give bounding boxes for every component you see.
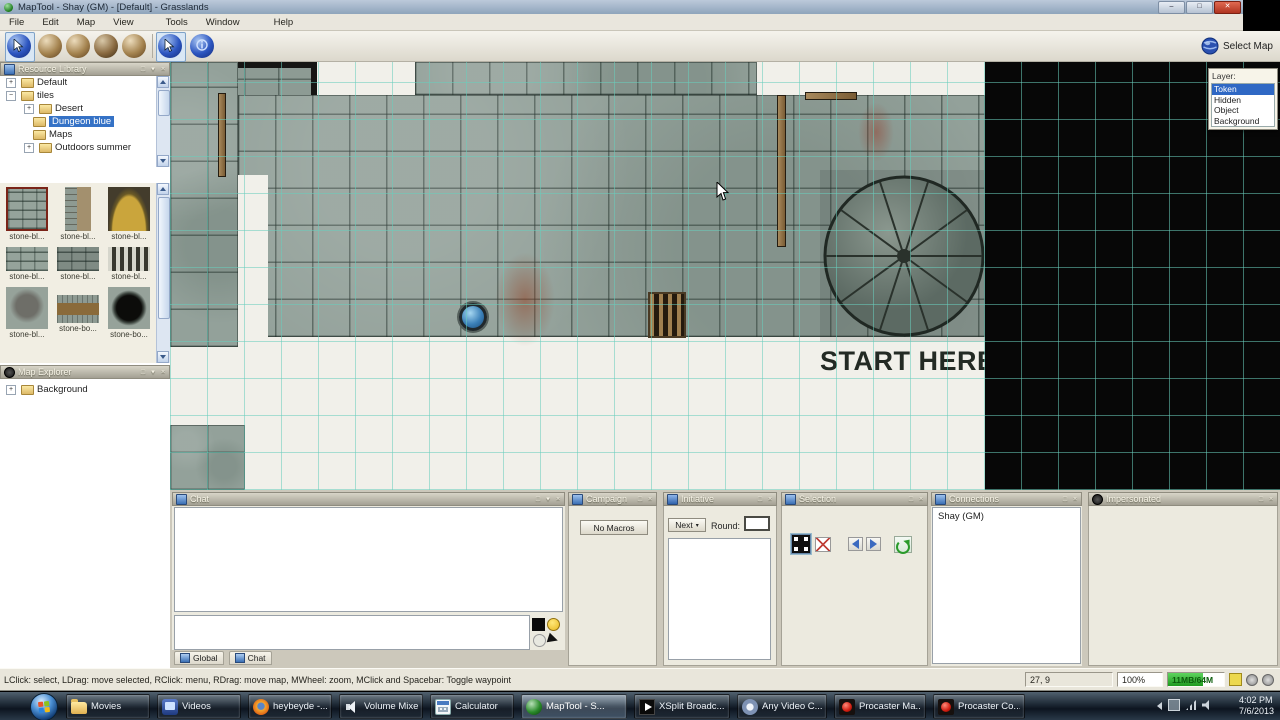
collapse-icon[interactable]: ▾	[149, 368, 157, 377]
resource-library-header[interactable]: Resource Library □▾×	[0, 62, 170, 76]
show-hidden-icons-icon[interactable]	[1157, 702, 1162, 710]
thumbnail-image-selected[interactable]	[6, 187, 48, 231]
grid-toggle-button[interactable]	[791, 534, 811, 554]
layer-panel: Layer: Token Hidden Object Background	[1208, 68, 1278, 130]
thumbnail-label: stone-bl...	[9, 330, 44, 339]
transfer-indicator-icon	[1246, 674, 1258, 686]
tab-icon	[180, 653, 190, 663]
refresh-icon	[896, 540, 910, 554]
chat-input[interactable]	[174, 615, 530, 650]
impersonated-body	[1088, 506, 1278, 666]
menu-window[interactable]: Window	[197, 15, 249, 30]
thumbnail-item[interactable]: stone-bl...	[105, 247, 153, 281]
thumbnail-item[interactable]: stone-bl...	[3, 187, 51, 241]
scroll-down-button[interactable]	[157, 351, 169, 363]
tree-label: Maps	[49, 129, 72, 140]
tree-label: Default	[37, 77, 67, 88]
menu-bar: File Edit Map View Tools Window Help	[0, 14, 1243, 31]
emoji-icon[interactable]	[547, 618, 560, 631]
tab-global[interactable]: Global	[174, 651, 224, 665]
arrow-right-icon	[870, 539, 877, 549]
float-icon[interactable]: □	[139, 65, 147, 74]
next-label: Next	[675, 520, 692, 530]
initiative-title: Initiative	[681, 494, 714, 504]
desktop-screen: MapTool - Shay (GM) - [Default] - Grassl…	[0, 0, 1280, 720]
campaign-panel: Campaign □× No Macros	[568, 492, 657, 666]
taskbar-item-firefox[interactable]: heybeyde -...	[248, 694, 332, 719]
panel-controls: □▾×	[139, 368, 167, 377]
chat-icon	[176, 494, 187, 505]
layer-option-object[interactable]: Object	[1212, 105, 1274, 116]
close-icon[interactable]: ×	[159, 65, 167, 74]
toolbar-separator	[152, 34, 153, 58]
thumbnail-label: stone-bl...	[60, 272, 95, 281]
initiative-icon	[667, 494, 678, 505]
door-marker	[218, 93, 226, 177]
close-icon[interactable]: ×	[766, 495, 774, 504]
close-icon[interactable]: ×	[917, 495, 925, 504]
thumbnail-label: stone-bo...	[110, 330, 148, 339]
folder-icon	[21, 385, 34, 395]
connection-item[interactable]: Shay (GM)	[933, 508, 1080, 525]
taskbar-item-xsplit[interactable]: XSplit Broadc...	[634, 694, 730, 719]
taskbar-item-movies[interactable]: Movies	[66, 694, 150, 719]
menu-file[interactable]: File	[0, 15, 33, 30]
taskbar-item-volume-mixer[interactable]: Volume Mixe...	[339, 694, 423, 719]
map-viewport[interactable]: START HERE Layer: Token Hidden Object Ba…	[170, 62, 1280, 490]
chat-panel: Chat □▾×	[172, 492, 565, 650]
thumbnail-image[interactable]	[6, 287, 48, 329]
initiative-panel: Initiative □× Next▾ Round:	[663, 492, 777, 666]
folder-icon	[33, 117, 46, 127]
thumbnail-image[interactable]	[57, 247, 99, 271]
close-icon[interactable]: ×	[1267, 495, 1275, 504]
zone-pointer-button[interactable]	[158, 34, 182, 58]
toolbar: Select Map	[0, 31, 1280, 62]
taskbar-clock[interactable]: 4:02 PM 7/6/2013	[1239, 695, 1274, 717]
template-tool-button[interactable]	[66, 34, 90, 58]
thumbnail-item[interactable]: stone-bo...	[105, 287, 153, 339]
speaker-icon	[344, 699, 360, 715]
display-tray-icon[interactable]	[1168, 699, 1180, 711]
connections-header[interactable]: Connections □×	[931, 492, 1082, 506]
maximize-button[interactable]: □	[1186, 1, 1213, 14]
selection-panel: Selection □×	[781, 492, 928, 666]
windows-logo-icon	[38, 701, 50, 713]
scroll-thumb[interactable]	[158, 90, 170, 116]
close-button[interactable]: ✕	[1214, 1, 1241, 14]
round-label: Round:	[711, 521, 740, 531]
arrow-left-icon	[852, 539, 859, 549]
selection-title: Selection	[799, 494, 836, 504]
media-player-icon	[162, 699, 178, 715]
tab-icon	[235, 653, 245, 663]
next-button[interactable]	[866, 537, 881, 551]
clock-date: 7/6/2013	[1239, 706, 1274, 717]
taskbar-label: Procaster Ma...	[859, 701, 921, 712]
refresh-button[interactable]	[894, 536, 912, 553]
send-icon[interactable]	[547, 633, 560, 646]
float-icon[interactable]: □	[1061, 495, 1069, 504]
thumbnail-image[interactable]	[65, 187, 91, 231]
chat-title: Chat	[190, 494, 209, 504]
calculator-icon	[435, 699, 451, 715]
tree-item-outdoors-summer[interactable]: + Outdoors summer	[0, 141, 170, 154]
scroll-up-button[interactable]	[157, 183, 169, 195]
impersonated-title: Impersonated	[1106, 494, 1161, 504]
firefox-icon	[253, 699, 269, 715]
thumbnail-item[interactable]: stone-bl...	[54, 187, 102, 241]
connections-list: Shay (GM)	[932, 507, 1081, 664]
close-icon[interactable]: ×	[646, 495, 654, 504]
folder-icon	[21, 91, 34, 101]
memory-indicator[interactable]: 11MB/64M	[1167, 672, 1225, 687]
thumbnail-image[interactable]	[6, 247, 48, 271]
thumbnail-image[interactable]	[108, 187, 150, 231]
menu-edit[interactable]: Edit	[33, 15, 67, 30]
layer-option-background[interactable]: Background	[1212, 116, 1274, 127]
tree-scrollbar[interactable]	[156, 76, 170, 167]
white-corridor-gap	[238, 175, 268, 337]
panel-controls: □▾×	[139, 65, 167, 74]
initiative-list[interactable]	[668, 538, 771, 660]
campaign-icon	[572, 494, 583, 505]
layer-option-token[interactable]: Token	[1212, 84, 1274, 95]
thumbnail-image[interactable]	[108, 287, 150, 329]
mouse-cursor-icon	[716, 182, 730, 202]
thumbnail-label: stone-bl...	[111, 232, 146, 241]
dungeon-tiles-top-row	[415, 62, 757, 95]
taskbar-item-maptool[interactable]: MapTool - S...	[521, 694, 627, 719]
rust-stain	[495, 252, 555, 347]
select-map-button[interactable]: Select Map	[1197, 33, 1277, 59]
thumbnail-image[interactable]	[108, 247, 150, 271]
resource-library-title: Resource Library	[18, 64, 87, 74]
selection-header[interactable]: Selection □×	[781, 492, 928, 506]
tree-item-dungeon-blue[interactable]: Dungeon blue	[0, 115, 170, 128]
thumbnail-image[interactable]	[57, 295, 99, 323]
folder-icon	[39, 143, 52, 153]
close-icon[interactable]: ×	[554, 495, 562, 504]
expander-icon[interactable]: +	[24, 143, 34, 153]
tree-item-maps[interactable]: Maps	[0, 128, 170, 141]
taskbar-item-calculator[interactable]: Calculator	[430, 694, 514, 719]
minimize-button[interactable]: –	[1158, 1, 1185, 14]
door-marker-tall	[777, 95, 786, 247]
close-icon[interactable]: ×	[1071, 495, 1079, 504]
snap-toggle-button[interactable]	[815, 537, 831, 552]
folder-icon	[71, 702, 87, 714]
window-titlebar: MapTool - Shay (GM) - [Default] - Grassl…	[0, 0, 1243, 14]
tree-item-desert[interactable]: + Desert	[0, 102, 170, 115]
video-converter-icon	[742, 699, 758, 715]
taskbar-label: Movies	[91, 701, 121, 712]
status-hint: LClick: select, LDrag: move selected, RC…	[0, 675, 511, 685]
chat-tab-bar: Global Chat	[174, 651, 272, 665]
thumbnail-label: stone-bo...	[59, 324, 97, 333]
thumbnail-label: stone-bl...	[9, 232, 44, 241]
layer-list: Token Hidden Object Background	[1211, 83, 1275, 127]
start-button[interactable]	[30, 693, 58, 720]
float-icon[interactable]: □	[636, 495, 644, 504]
resource-tree: + Default − tiles + Desert Dungeon blue …	[0, 76, 170, 167]
taskbar-label: Calculator	[455, 701, 498, 712]
connections-title: Connections	[949, 494, 999, 504]
grate-tile	[648, 292, 686, 338]
initiative-body: Next▾ Round:	[663, 506, 777, 666]
taskbar-label: Any Video C...	[762, 701, 822, 712]
zone-info-button[interactable]	[190, 34, 214, 58]
connections-icon	[935, 494, 946, 505]
door-marker-horizontal	[805, 92, 857, 100]
thumbnail-item[interactable]: stone-bl...	[3, 247, 51, 281]
taskbar: Movies Videos heybeyde -... Volume Mixe.…	[0, 691, 1280, 720]
taskbar-label: XSplit Broadc...	[659, 701, 724, 712]
pointer-tool-button[interactable]	[7, 34, 31, 58]
float-icon[interactable]: □	[907, 495, 915, 504]
campaign-body: No Macros	[568, 506, 657, 666]
chat-header[interactable]: Chat □▾×	[172, 492, 565, 506]
campaign-title: Campaign	[586, 494, 627, 504]
folder-icon	[39, 104, 52, 114]
collapse-icon[interactable]: ▾	[149, 65, 157, 74]
campaign-header[interactable]: Campaign □×	[568, 492, 657, 506]
scroll-up-button[interactable]	[157, 76, 169, 88]
chevron-down-icon: ▾	[696, 522, 699, 529]
folder-icon	[33, 130, 46, 140]
stamp-tool-button[interactable]	[122, 34, 146, 58]
window-title: MapTool - Shay (GM) - [Default] - Grassl…	[18, 2, 209, 13]
assets-indicator-icon	[1229, 673, 1242, 686]
play-icon	[639, 699, 655, 715]
dungeon-tiles-left-strip	[170, 62, 238, 347]
tree-item-background[interactable]: + Background	[0, 383, 170, 396]
status-bar: LClick: select, LDrag: move selected, RC…	[0, 668, 1280, 691]
memory-text: 11MB/64M	[1172, 675, 1213, 685]
scroll-down-button[interactable]	[157, 155, 169, 167]
procaster-icon	[839, 699, 855, 715]
token-tool-button[interactable]	[94, 34, 118, 58]
collapse-icon[interactable]: ▾	[544, 495, 552, 504]
globe-icon	[1201, 37, 1219, 55]
float-icon[interactable]: □	[756, 495, 764, 504]
bottom-dock: Chat □▾× Global Chat Campa	[170, 490, 1280, 668]
close-icon[interactable]: ×	[159, 368, 167, 377]
layer-option-hidden[interactable]: Hidden	[1212, 95, 1274, 106]
system-tray	[1157, 699, 1212, 711]
volume-tray-icon[interactable]	[1202, 700, 1212, 710]
folder-icon	[21, 78, 34, 88]
menu-view[interactable]: View	[104, 15, 142, 30]
next-button[interactable]: Next▾	[668, 518, 706, 532]
spiral-staircase	[820, 170, 988, 342]
impersonated-icon	[1092, 494, 1103, 505]
menu-map[interactable]: Map	[68, 15, 104, 30]
thumbnail-label: stone-bl...	[60, 232, 95, 241]
thumbnail-item[interactable]: stone-bl...	[105, 187, 153, 241]
no-macros-label: No Macros	[593, 523, 634, 533]
activity-indicator-icon	[1262, 674, 1274, 686]
taskbar-item-procaster-1[interactable]: Procaster Ma...	[834, 694, 926, 719]
selection-icon	[785, 494, 796, 505]
no-macros-button[interactable]: No Macros	[580, 520, 648, 535]
map-explorer-panel: Map Explorer □▾× + Background	[0, 365, 170, 668]
text-color-swatch[interactable]	[532, 618, 545, 631]
tab-chat[interactable]: Chat	[229, 651, 272, 665]
map-explorer-header[interactable]: Map Explorer □▾×	[0, 365, 170, 379]
tree-item-tiles[interactable]: − tiles	[0, 89, 170, 102]
float-icon[interactable]: □	[1257, 495, 1265, 504]
resource-library-panel: Resource Library □▾× + Default − tiles +…	[0, 62, 170, 365]
round-input[interactable]	[744, 516, 770, 531]
dungeon-tiles-bottom-left	[170, 425, 245, 490]
scroll-thumb[interactable]	[158, 197, 170, 319]
taskbar-label: heybeyde -...	[273, 701, 327, 712]
procaster-icon	[938, 699, 954, 715]
notify-icon[interactable]	[533, 634, 546, 647]
taskbar-item-any-video[interactable]: Any Video C...	[737, 694, 827, 719]
tree-label: Outdoors summer	[55, 142, 131, 153]
selection-body	[781, 506, 928, 666]
impersonated-header[interactable]: Impersonated □×	[1088, 492, 1278, 506]
float-icon[interactable]: □	[139, 368, 147, 377]
initiative-header[interactable]: Initiative □×	[663, 492, 777, 506]
tree-label-selected: Dungeon blue	[49, 116, 114, 127]
taskbar-label: MapTool - S...	[546, 701, 605, 712]
thumbnail-item[interactable]: stone-bl...	[3, 287, 51, 339]
menu-tools[interactable]: Tools	[157, 15, 197, 30]
expander-icon[interactable]: +	[6, 78, 16, 88]
thumbnail-item[interactable]: stone-bl...	[54, 247, 102, 281]
connections-panel: Connections □× Shay (GM)	[931, 492, 1082, 666]
taskbar-label: Volume Mixe...	[364, 701, 418, 712]
window-icon	[4, 367, 15, 378]
well-token[interactable]	[459, 303, 487, 331]
clock-time: 4:02 PM	[1239, 695, 1274, 706]
thumbnail-label: stone-bl...	[111, 272, 146, 281]
rust-stain	[858, 102, 894, 162]
cursor-icon	[13, 39, 24, 52]
select-map-label: Select Map	[1223, 41, 1273, 52]
layer-panel-label: Layer:	[1212, 71, 1275, 81]
info-icon	[196, 39, 208, 51]
expander-icon[interactable]: +	[6, 385, 16, 395]
coordinates-field: 27, 9	[1025, 672, 1113, 687]
map-explorer-title: Map Explorer	[18, 367, 72, 377]
maptool-globe-icon	[526, 699, 542, 715]
measure-tool-button[interactable]	[38, 34, 62, 58]
thumbnail-item[interactable]: stone-bo...	[54, 287, 102, 339]
float-icon[interactable]: □	[534, 495, 542, 504]
expander-icon[interactable]: −	[6, 91, 16, 101]
taskbar-item-videos[interactable]: Videos	[157, 694, 241, 719]
chat-message-area[interactable]	[174, 507, 563, 612]
zoom-field: 100%	[1117, 672, 1163, 687]
taskbar-buttons: Movies Videos heybeyde -... Volume Mixe.…	[66, 694, 1025, 719]
taskbar-item-procaster-2[interactable]: Procaster Co...	[933, 694, 1025, 719]
taskbar-label: Videos	[182, 701, 211, 712]
prev-button[interactable]	[848, 537, 863, 551]
tree-label: tiles	[37, 90, 54, 101]
tree-item-default[interactable]: + Default	[0, 76, 170, 89]
tab-label: Chat	[248, 653, 266, 663]
tree-label: Background	[37, 384, 88, 395]
tree-label: Desert	[55, 103, 83, 114]
network-tray-icon[interactable]	[1186, 700, 1196, 710]
maptool-app-icon	[4, 3, 13, 12]
cursor-icon	[164, 39, 175, 52]
thumbnail-scrollbar[interactable]	[156, 183, 170, 363]
thumbnail-label: stone-bl...	[9, 272, 44, 281]
expander-icon[interactable]: +	[24, 104, 34, 114]
impersonated-panel: Impersonated □×	[1088, 492, 1278, 666]
window-icon	[4, 64, 15, 75]
menu-help[interactable]: Help	[265, 15, 303, 30]
taskbar-label: Procaster Co...	[958, 701, 1020, 712]
tab-label: Global	[193, 653, 218, 663]
thumbnail-grid: stone-bl... stone-bl... stone-bl... ston…	[0, 183, 170, 363]
